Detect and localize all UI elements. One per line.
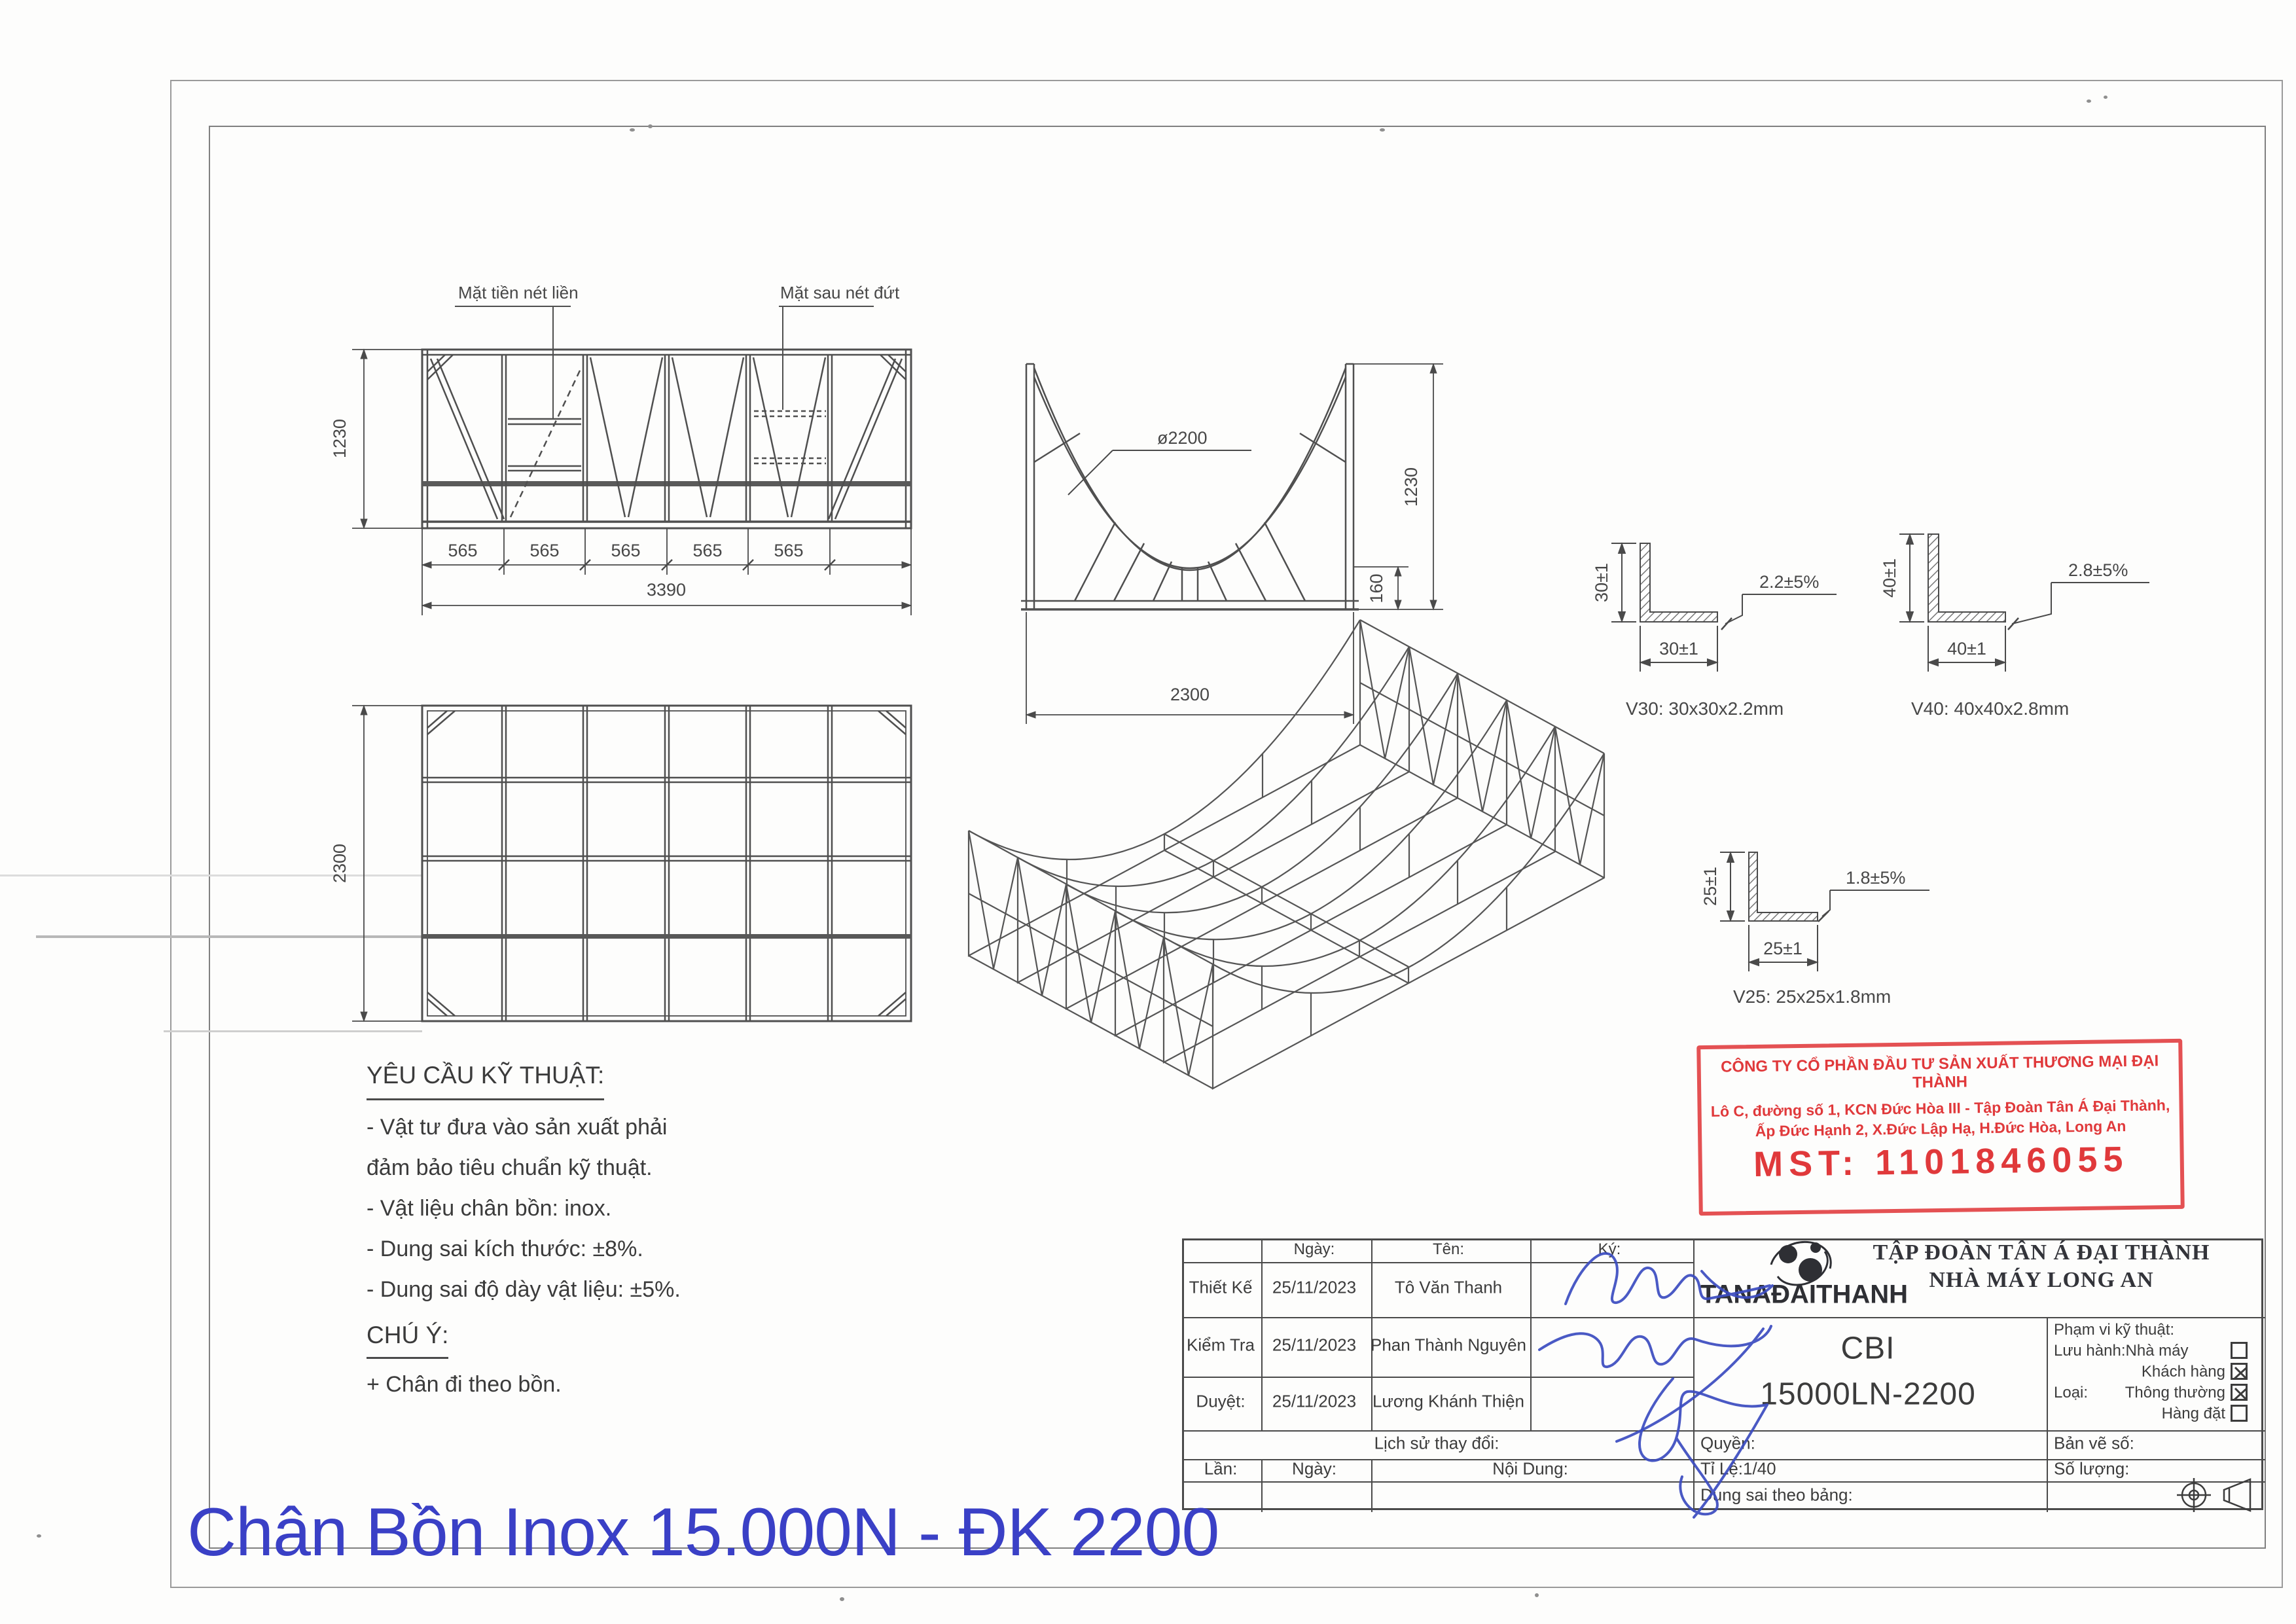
front-total-dim: 3390 [647, 580, 686, 600]
note-line: - Dung sai độ dày vật liệu: ±5%. [367, 1269, 681, 1310]
scope-title: Phạm vi kỹ thuật: [2054, 1321, 2174, 1339]
technical-notes: YÊU CẦU KỸ THUẬT: - Vật tư đưa vào sản x… [367, 1055, 681, 1405]
attention-line: + Chân đi theo bồn. [367, 1364, 681, 1405]
v40-vertical-dim: 40±1 [1880, 558, 1899, 598]
v30-vertical-dim: 30±1 [1592, 563, 1611, 602]
tb-row-approve-date: 25/11/2023 [1272, 1392, 1356, 1412]
checkbox-luuhanh [2231, 1342, 2248, 1359]
tb-banveso-label: Bản vẽ số: [2054, 1434, 2134, 1454]
tb-row-design-date: 25/11/2023 [1272, 1278, 1356, 1298]
v25-horizontal-dim: 25±1 [1763, 939, 1803, 958]
v30-caption: V30: 30x30x2.2mm [1626, 698, 1784, 719]
note-line: - Vật liệu chân bồn: inox. [367, 1188, 681, 1229]
section-base-dim: 160 [1367, 573, 1386, 603]
tb-row-check-name: Phan Thành Nguyên [1371, 1335, 1526, 1356]
section-width-dim: 2300 [1170, 685, 1210, 704]
tb-noidung-label: Nội Dung: [1492, 1459, 1568, 1479]
v25-thickness-dim: 1.8±5% [1846, 868, 1905, 888]
top-view-dimensions [352, 706, 422, 1021]
v40-caption: V40: 40x40x2.8mm [1911, 698, 2069, 719]
scope-row-thongthuong: Thông thường [2054, 1384, 2225, 1402]
company-name-line1: TẬP ĐOÀN TÂN Á ĐẠI THÀNH [1873, 1240, 2210, 1265]
stamp-address-2: Ấp Đức Hạnh 2, X.Đức Lập Hạ, H.Đức Hòa, … [1702, 1117, 2179, 1141]
product-code-line2: 15000LN-2200 [1760, 1377, 1976, 1413]
notes-heading: YÊU CẦU KỸ THUẬT: [367, 1055, 604, 1100]
tb-quyen-label: Quyền: [1700, 1434, 1755, 1454]
diameter-leader [1068, 450, 1251, 495]
tb-row-design-name: Tô Văn Thanh [1395, 1278, 1502, 1298]
attention-heading: CHÚ Ý: [367, 1315, 448, 1359]
section-view [1021, 364, 1359, 609]
tb-header-ky: Ký: [1598, 1240, 1621, 1259]
seg-dim-2: 565 [529, 541, 559, 560]
tb-history-label: Lịch sử thay đổi: [1374, 1434, 1499, 1454]
company-stamp: CÔNG TY CỔ PHẦN ĐẦU TƯ SẢN XUẤT THƯƠNG M… [1696, 1039, 2185, 1216]
tb-soluong-label: Số lượng: [2054, 1459, 2129, 1479]
top-plan-view [422, 706, 911, 1021]
v30-horizontal-dim: 30±1 [1659, 639, 1698, 659]
product-code-line1: CBI [1840, 1331, 1895, 1367]
top-depth-dim: 2300 [330, 844, 350, 883]
front-elevation-view [422, 350, 911, 528]
front-height-dim: 1230 [330, 419, 350, 458]
seg-dim-3: 565 [611, 541, 640, 560]
checkbox-khachhang [2231, 1363, 2248, 1380]
stamp-company-name: CÔNG TY CỔ PHẦN ĐẦU TƯ SẢN XUẤT THƯƠNG M… [1700, 1052, 2179, 1095]
tb-dungsai-label: Dung sai theo bảng: [1700, 1485, 1853, 1506]
seg-dim-1: 565 [448, 541, 477, 560]
front-face-label: Mặt tiền nét liền [458, 283, 579, 302]
scope-row-khachhang: Khách hàng [2054, 1363, 2225, 1381]
isometric-view [969, 620, 1604, 1089]
tb-row-approve-name: Lương Khánh Thiện [1372, 1392, 1524, 1412]
diameter-label: ø2200 [1157, 428, 1208, 448]
v40-thickness-dim: 2.8±5% [2068, 560, 2128, 580]
v30-thickness-dim: 2.2±5% [1759, 572, 1819, 592]
section-height-dim: 1230 [1401, 467, 1421, 507]
note-line: - Dung sai kích thước: ±8%. [367, 1229, 681, 1269]
tb-lan-label: Lần: [1204, 1459, 1238, 1479]
logo-wordmark: TANAĐAITHANH [1700, 1280, 1908, 1310]
tb-tile-label: Tỉ Lệ:1/40 [1700, 1459, 1776, 1479]
company-name-line2: NHÀ MÁY LONG AN [1929, 1268, 2153, 1293]
tb-row-check-label: Kiểm Tra [1187, 1335, 1255, 1356]
scope-row-luuhanh: Lưu hành:Nhà máy [2054, 1342, 2189, 1360]
v25-vertical-dim: 25±1 [1700, 867, 1720, 906]
note-line: - Vật tư đưa vào sản xuất phải [367, 1107, 681, 1147]
tb-header-ngay: Ngày: [1294, 1240, 1335, 1259]
tb-ngay2-label: Ngày: [1292, 1459, 1336, 1479]
checkbox-thongthuong [2231, 1384, 2248, 1401]
seg-dim-5: 565 [774, 541, 803, 560]
stamp-tax-id: MST: 1101846055 [1702, 1138, 2180, 1185]
v25-caption: V25: 25x25x1.8mm [1733, 986, 1891, 1007]
checkbox-hangdat [2231, 1405, 2248, 1422]
profile-v30 [1611, 543, 1837, 672]
tb-header-ten: Tên: [1433, 1240, 1464, 1259]
tb-row-design-label: Thiết Kế [1189, 1278, 1253, 1298]
section-dimensions [1026, 364, 1443, 724]
scope-row-hangdat: Hàng đặt [2054, 1405, 2225, 1423]
profile-v40 [1899, 534, 2149, 672]
tb-row-approve-label: Duyệt: [1196, 1392, 1245, 1412]
note-line: đảm bảo tiêu chuẩn kỹ thuật. [367, 1147, 681, 1188]
drawing-sheet: Mặt tiền nét liền Mặt sau nét đứt 1230 5 [0, 0, 2296, 1624]
v40-horizontal-dim: 40±1 [1947, 639, 1986, 659]
drawing-title: Chân Bồn Inox 15.000N - ĐK 2200 [187, 1494, 1219, 1572]
rear-face-label: Mặt sau nét đứt [780, 283, 900, 302]
seg-dim-4: 565 [692, 541, 722, 560]
tb-row-check-date: 25/11/2023 [1272, 1335, 1356, 1356]
